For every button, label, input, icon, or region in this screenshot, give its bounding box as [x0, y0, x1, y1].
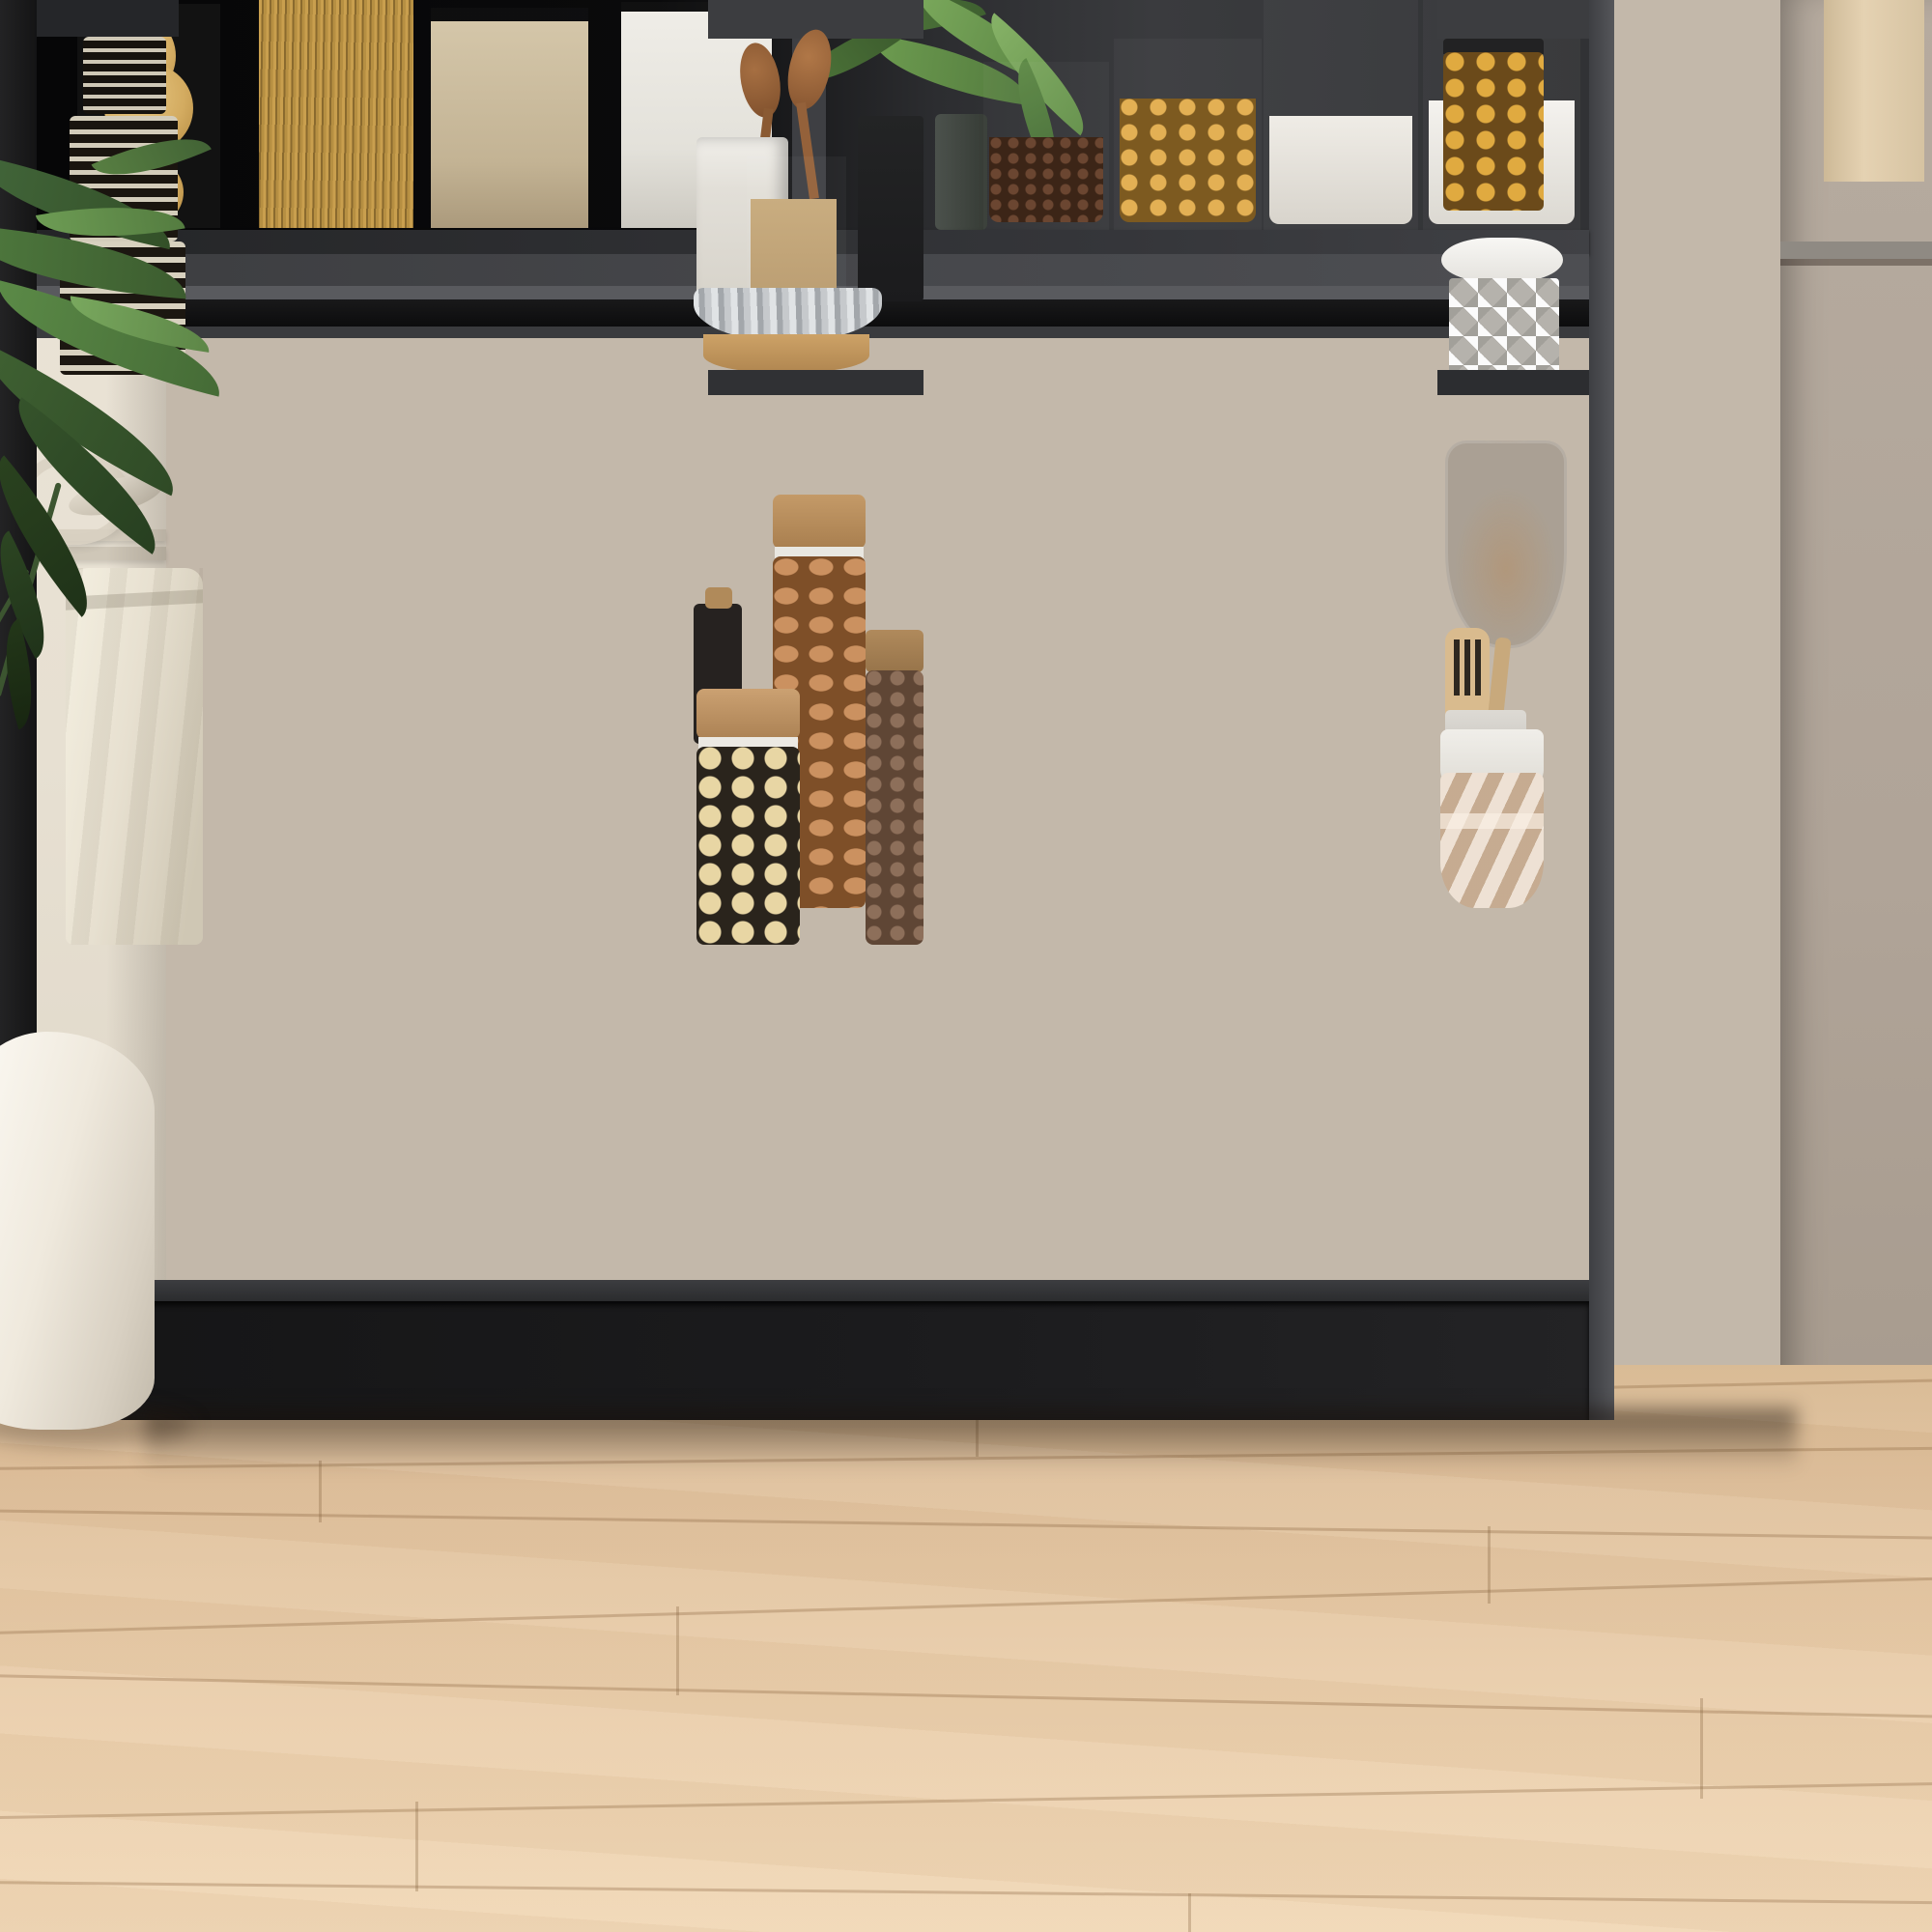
white-vase: [0, 1032, 155, 1430]
jar-large-glass: [1264, 0, 1418, 230]
herb-vase: [935, 114, 987, 230]
product-image: 6,4 cm 6,4 cm 6,4 cm 6,4 cm 6,4 cm 6,4 c…: [0, 0, 1932, 1932]
floor-plank-joint: [676, 1606, 679, 1695]
bottle-cork: [705, 587, 732, 609]
wooden-bowl: [703, 334, 869, 373]
background-table-edge: [1780, 241, 1932, 259]
background-chair-rail: [1789, 180, 1932, 241]
dark-spice-jar: [858, 116, 923, 301]
dragee-jar-lid: [866, 630, 923, 672]
floor-plank-joint: [1188, 1893, 1191, 1932]
middle-shelf: [708, 370, 923, 395]
plate-stack: [83, 37, 166, 114]
beige-faceted-bowl: [1440, 773, 1544, 908]
jar-hazelnuts: [696, 747, 800, 945]
fabric-storage-bag: [66, 568, 203, 945]
cabinet-floor-shadow: [145, 1408, 1797, 1470]
hazelnut-jar-lid: [696, 689, 800, 739]
cabinet-plinth: [25, 1301, 1589, 1420]
floor-plank-joint: [1488, 1526, 1491, 1604]
jar-chocolate-pearls: [983, 62, 1109, 230]
jar-flour: [431, 8, 588, 228]
sugar-cube-container: [1449, 278, 1559, 377]
jar-spaghetti: [259, 0, 413, 228]
background-table-shadow: [1780, 259, 1932, 266]
almond-jar-lid: [773, 495, 866, 549]
glass-decanter: [1445, 440, 1567, 648]
background-chair-post: [1824, 0, 1924, 182]
floor-plank-joint: [1700, 1698, 1703, 1799]
jar-crackers: [1114, 39, 1262, 230]
cabinet-side-right: [1589, 0, 1614, 1420]
cabinet-bottom-board: [37, 1280, 1589, 1301]
slotted-spatula: [1445, 628, 1490, 721]
right-shelf: [1437, 370, 1589, 395]
sugar-container-lid: [1441, 238, 1563, 282]
jar-dragees: [866, 670, 923, 945]
jar-snacks: [1443, 52, 1544, 211]
floor-plank-joint: [415, 1802, 418, 1891]
